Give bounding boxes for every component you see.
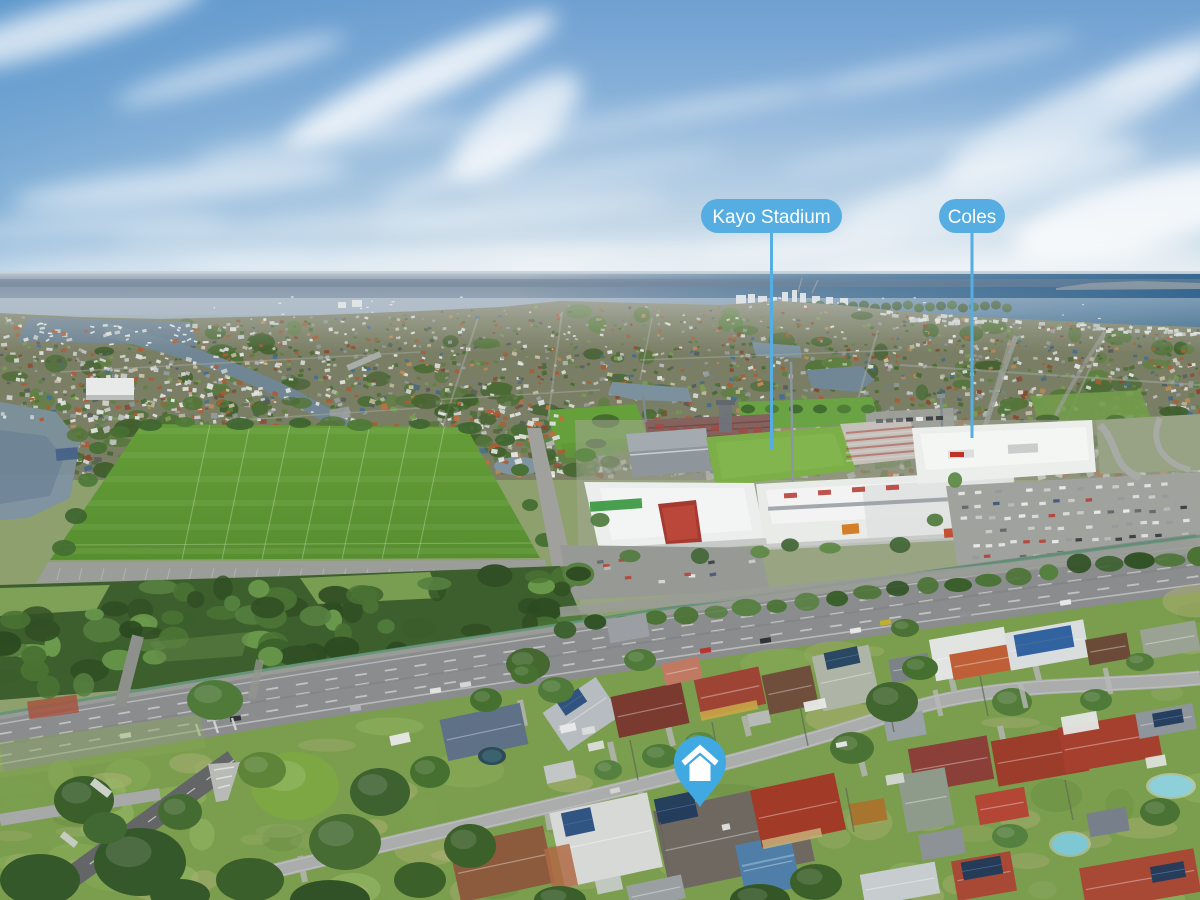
- svg-text:Kayo Stadium: Kayo Stadium: [712, 207, 830, 228]
- svg-text:Coles: Coles: [948, 207, 997, 228]
